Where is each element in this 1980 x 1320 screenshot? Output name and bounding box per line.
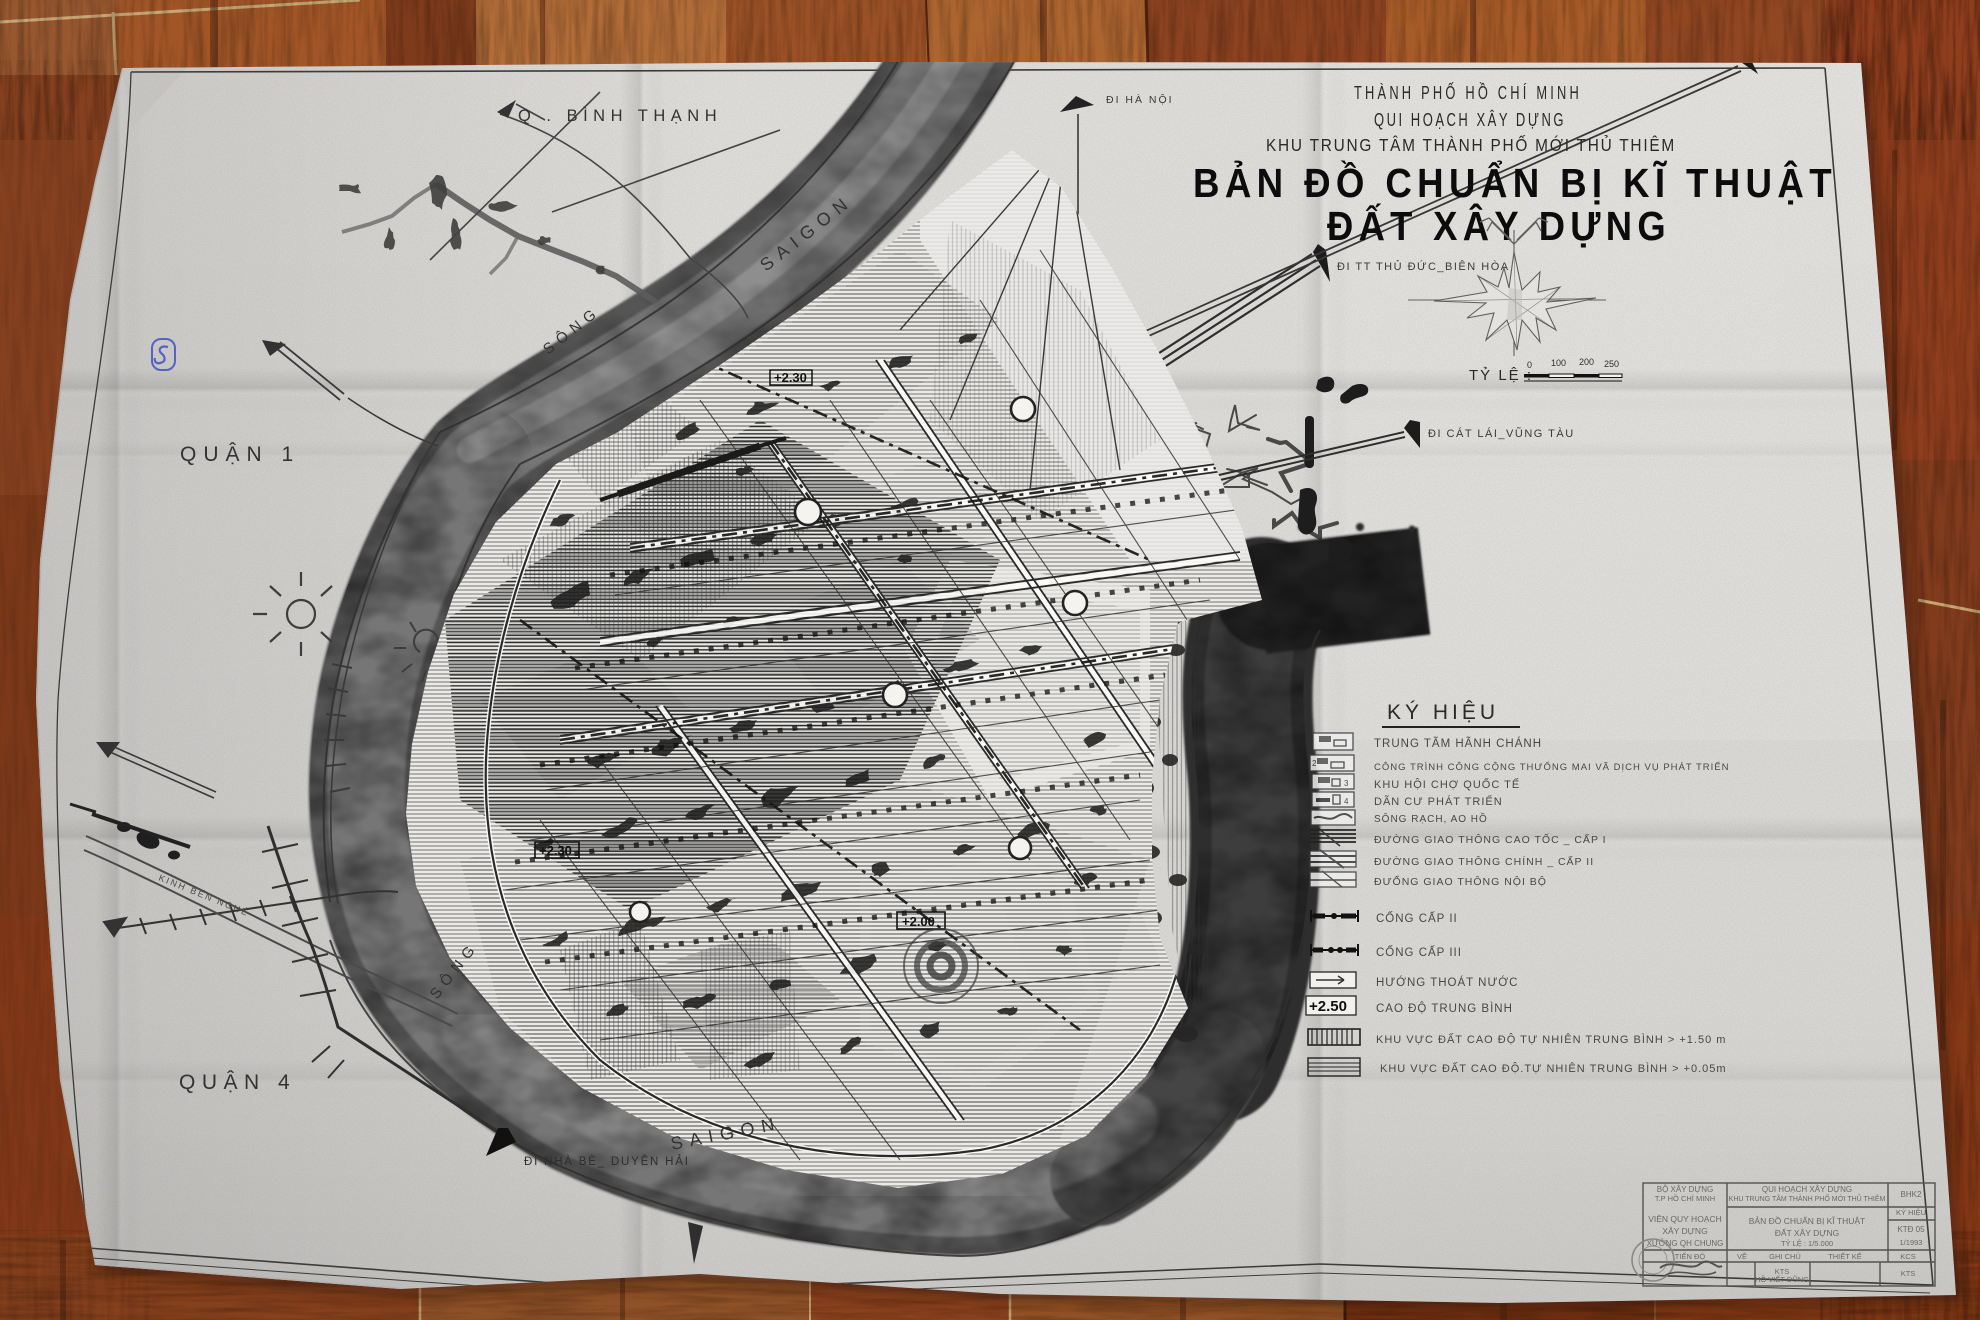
svg-text:KÝ HIỆU: KÝ HIỆU [1387,701,1499,724]
svg-text:ĐI HÀ NỘI: ĐI HÀ NỘI [1106,93,1174,106]
svg-text:KCS: KCS [1900,1252,1915,1261]
svg-text:+2.30: +2.30 [774,370,807,385]
svg-text:+2.00: +2.00 [902,914,935,929]
svg-text:KHU VỰC ĐẤT CAO ĐỘ.TỰ NHIÊN TR: KHU VỰC ĐẤT CAO ĐỘ.TỰ NHIÊN TRUNG BÌNH >… [1380,1062,1727,1075]
svg-text:ĐẤT XÂY DỰNG: ĐẤT XÂY DỰNG [1327,203,1671,249]
svg-text:QUI HOẠCH XÂY DỰNG: QUI HOẠCH XÂY DỰNG [1374,110,1566,130]
svg-text:0: 0 [1527,360,1532,370]
svg-text:VIỆN QUY HOẠCH: VIỆN QUY HOẠCH [1648,1214,1722,1224]
svg-text:100: 100 [1551,358,1566,368]
svg-text:HƯỚNG THOÁT NƯỚC: HƯỚNG THOÁT NƯỚC [1376,976,1518,989]
svg-text:KTS: KTS [1901,1269,1916,1278]
svg-text:CỐNG CẤP II: CỐNG CẤP II [1376,911,1458,925]
svg-text:+2.50: +2.50 [1309,998,1347,1015]
svg-text:250: 250 [1604,359,1619,369]
svg-text:VẼ: VẼ [1737,1252,1747,1261]
svg-text:1/1993: 1/1993 [1900,1238,1923,1247]
svg-text:3: 3 [1344,779,1349,788]
svg-text:ĐẤT XÂY DỰNG: ĐẤT XÂY DỰNG [1775,1228,1840,1238]
svg-text:200: 200 [1579,357,1594,367]
svg-text:TRUNG TÃM HÃNH CHÁNH: TRUNG TÃM HÃNH CHÁNH [1374,737,1542,750]
svg-text:KHU HỘI CHỢ QUỐC TẾ: KHU HỘI CHỢ QUỐC TẾ [1374,777,1520,791]
svg-text:KTĐ 05: KTĐ 05 [1897,1225,1925,1234]
svg-text:THIẾT KẾ: THIẾT KẾ [1828,1251,1862,1261]
svg-text:CÔNG TRÌNH CÔNG CỘNG THƯỔNG MA: CÔNG TRÌNH CÔNG CỘNG THƯỔNG MAI VÃ DỊCH … [1374,761,1729,773]
svg-text:BẢN ĐỒ CHUẨN BỊ KĨ THUẬT: BẢN ĐỒ CHUẨN BỊ KĨ THUẬT [1749,1215,1866,1226]
svg-text:TIẾN ĐỘ: TIẾN ĐỘ [1675,1251,1706,1261]
svg-text:XÂY DỰNG: XÂY DỰNG [1662,1226,1707,1236]
svg-text:ĐƯỜNG GIAO THÔNG CHÍNH _ CẤP: ĐƯỜNG GIAO THÔNG CHÍNH _ CẤP II [1374,855,1594,868]
svg-text:BẢN ĐỒ CHUẨN BỊ KĨ THUẬT: BẢN ĐỒ CHUẨN BỊ KĨ THUẬT [1193,159,1837,206]
svg-text:QUẬN 1: QUẬN 1 [180,443,300,466]
svg-text:HỒ VIẾT DŨNG: HỒ VIẾT DŨNG [1755,1274,1809,1284]
svg-text:KÝ HIỆU: KÝ HIỆU [1896,1208,1926,1217]
svg-text:CAO ĐỘ TRUNG BÌNH: CAO ĐỘ TRUNG BÌNH [1376,1002,1513,1015]
svg-text:Q . BÌNH THẠNH: Q . BÌNH THẠNH [518,106,722,125]
svg-text:ĐI NHÀ BÈ_ DUYÊN HẢI: ĐI NHÀ BÈ_ DUYÊN HẢI [524,1155,690,1168]
svg-text:KHU TRUNG TÂM THÀNH PHỐ MỚI TH: KHU TRUNG TÂM THÀNH PHỐ MỚI THỦ THIÊM [1266,134,1676,155]
svg-text:ĐI CÁT LÁI_VŨNG TÀU: ĐI CÁT LÁI_VŨNG TÀU [1428,427,1575,440]
svg-text:TỶ LỆ :: TỶ LỆ : [1469,367,1533,384]
svg-text:2: 2 [1312,759,1317,768]
svg-text:ĐƯỔNG GIAO THÔNG NỘI BỘ: ĐƯỔNG GIAO THÔNG NỘI BỘ [1374,875,1547,888]
svg-text:DÃN CƯ PHÁT TRIỂN: DÃN CƯ PHÁT TRIỂN [1374,795,1503,808]
svg-text:ĐƯỜNG GIAO THÔNG CAO TỐC _ CẤP: ĐƯỜNG GIAO THÔNG CAO TỐC _ CẤP I [1374,832,1607,846]
svg-text:4: 4 [1344,797,1349,806]
svg-text:+2.30: +2.30 [539,843,572,858]
svg-text:GHI CHÚ: GHI CHÚ [1769,1252,1801,1261]
svg-text:BHK2: BHK2 [1901,1190,1922,1199]
svg-text:KHU VỰC ĐẤT CAO ĐỘ TỰ NHIÊN TR: KHU VỰC ĐẤT CAO ĐỘ TỰ NHIÊN TRUNG BÌNH >… [1376,1033,1726,1046]
svg-text:ĐI TT THỦ ĐỨC_BIÊN HÒA: ĐI TT THỦ ĐỨC_BIÊN HÒA [1337,260,1510,273]
svg-text:THÀNH PHỐ HỒ CHÍ MINH: THÀNH PHỐ HỒ CHÍ MINH [1354,82,1582,103]
svg-text:CỐNG CẤP III: CỐNG CẤP III [1376,945,1462,959]
svg-text:SÔNG RẠCH, AO HỒ: SÔNG RẠCH, AO HỒ [1374,812,1488,825]
svg-text:QUẬN 4: QUẬN 4 [179,1071,296,1094]
svg-text:T.P HỒ CHÍ MINH: T.P HỒ CHÍ MINH [1655,1193,1715,1203]
svg-text:BỘ XÂY DỰNG: BỘ XÂY DỰNG [1657,1185,1713,1194]
svg-text:QUI HOẠCH XÂY DỰNG: QUI HOẠCH XÂY DỰNG [1762,1185,1852,1194]
svg-text:TỶ LỆ : 1/5.000: TỶ LỆ : 1/5.000 [1781,1239,1833,1248]
